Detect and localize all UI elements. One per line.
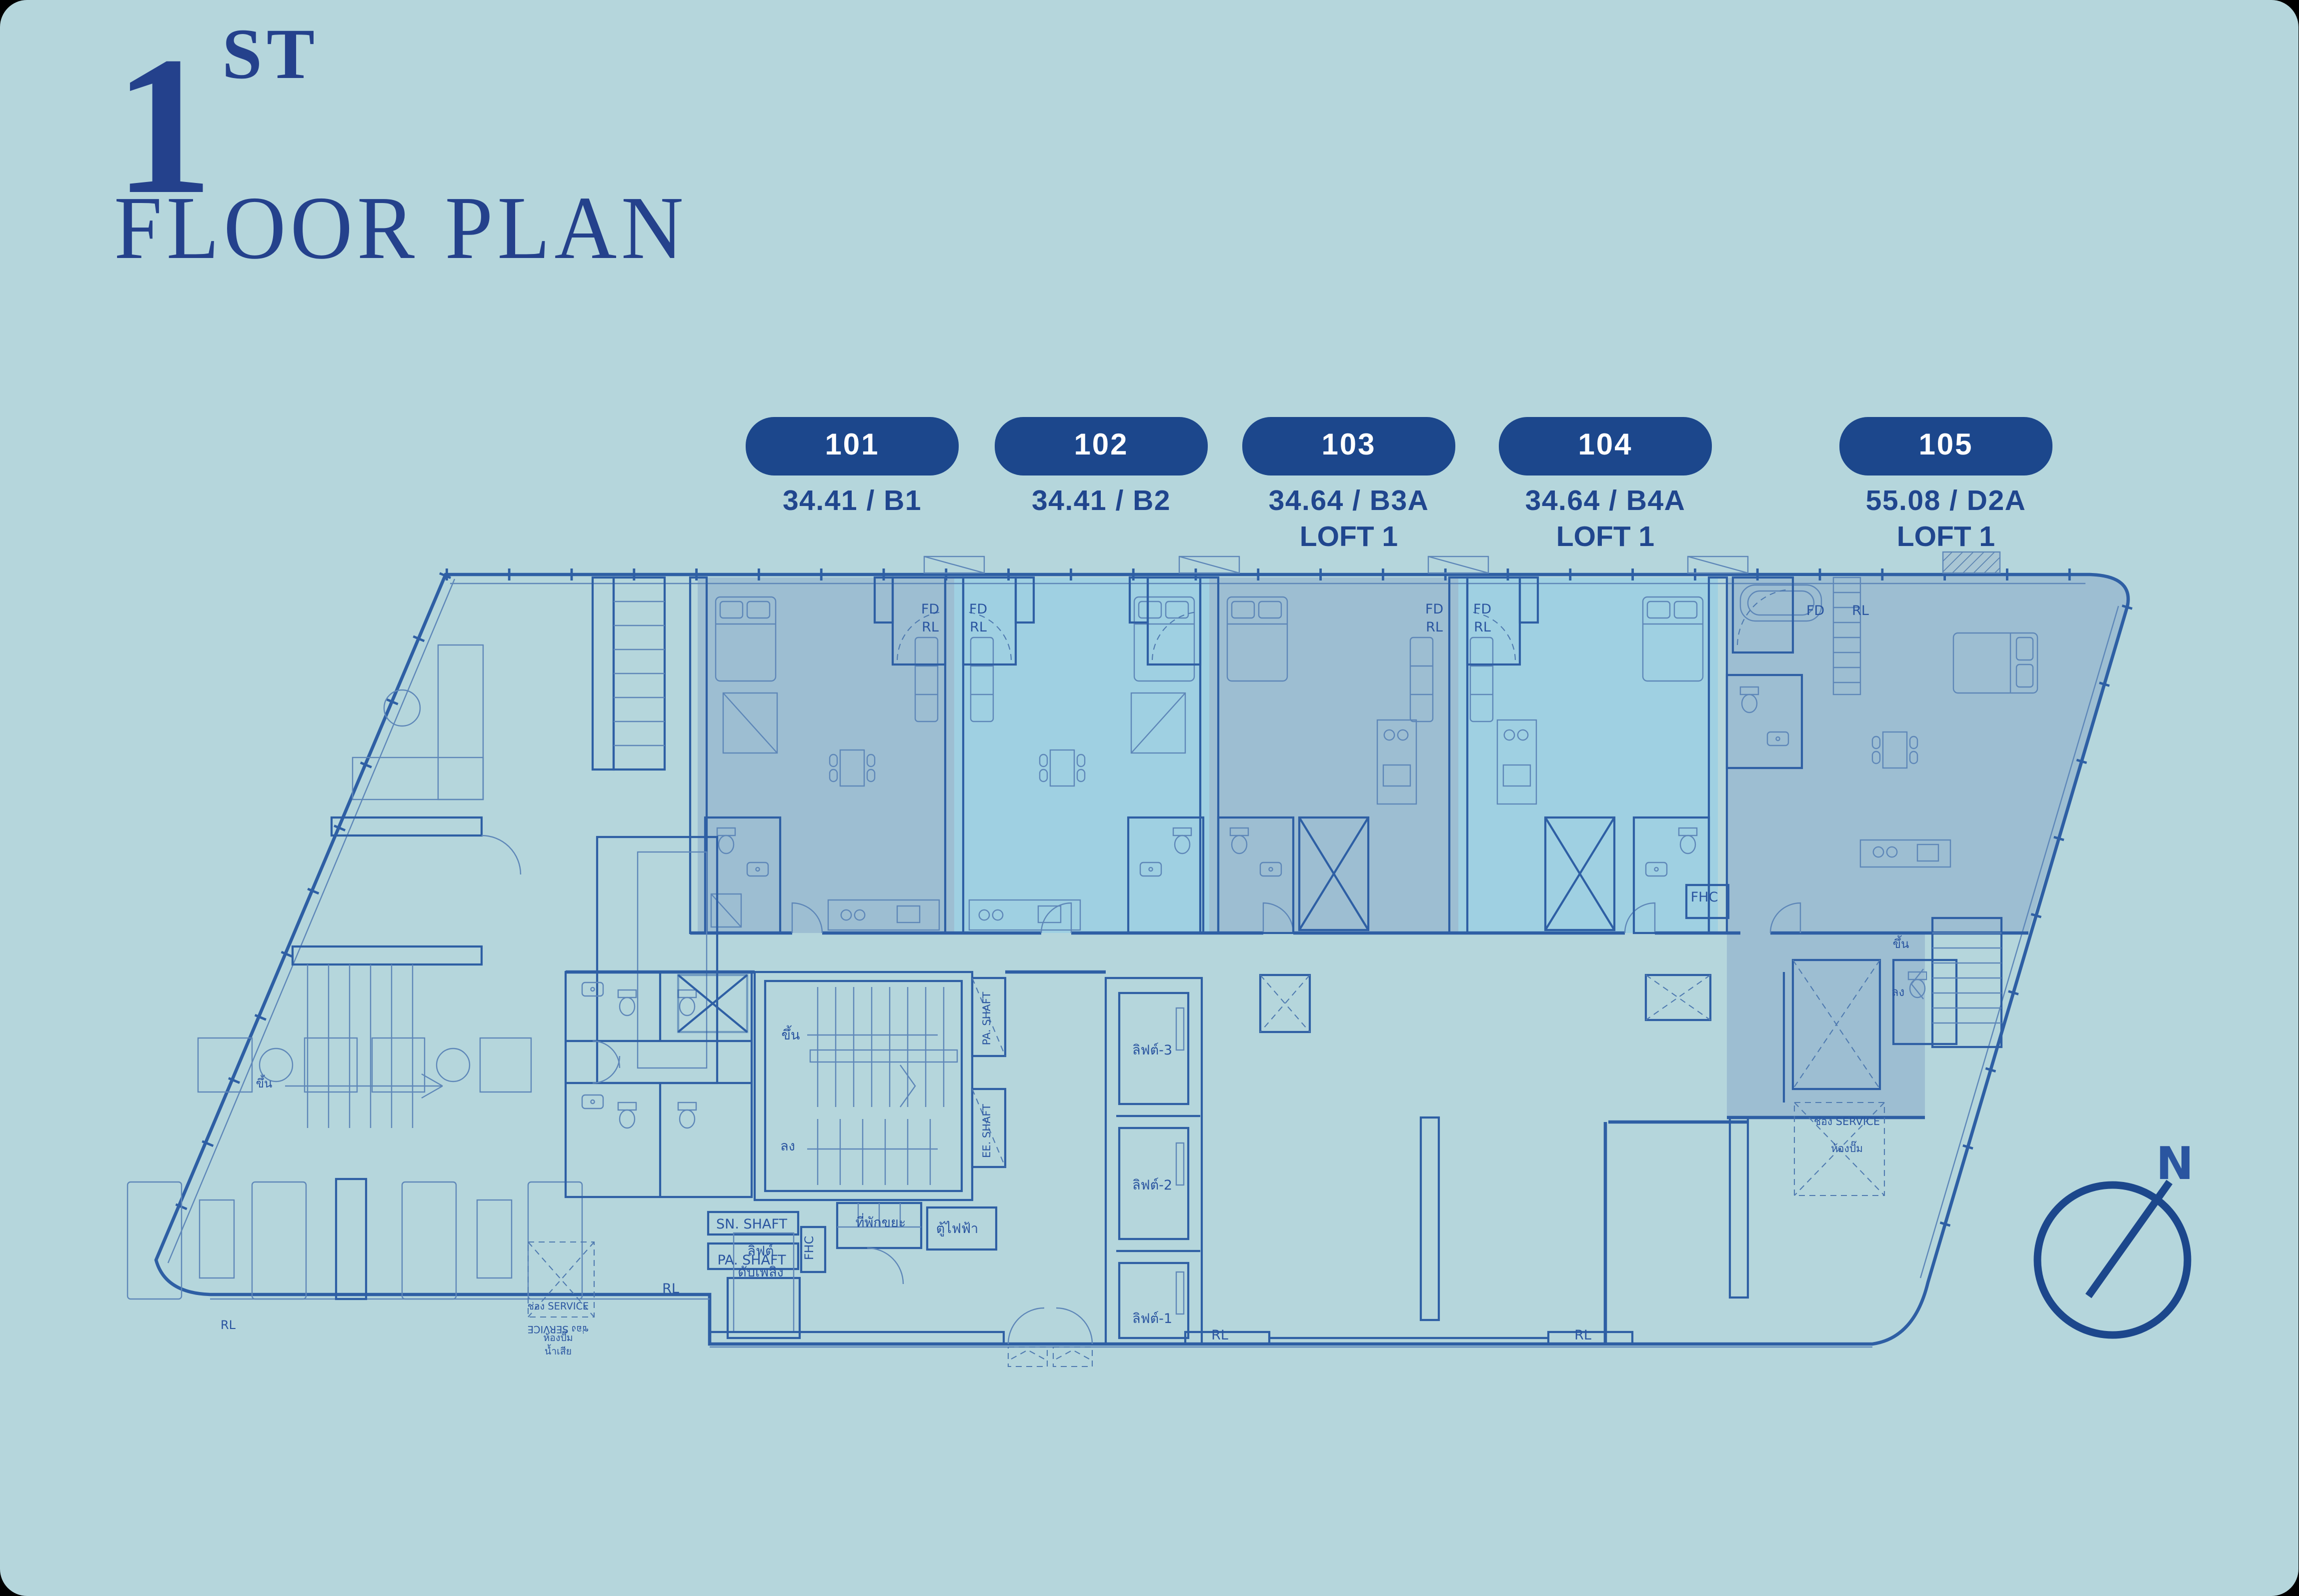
compass: N	[2037, 1137, 2193, 1335]
plan-label: ช่อง SERVICE	[528, 1300, 589, 1312]
plan-label: RL	[1211, 1327, 1228, 1343]
elevator-bank	[1106, 978, 1202, 1344]
plan-label: RL	[1574, 1327, 1591, 1343]
plan-label: ลิฟต์	[747, 1243, 774, 1259]
plan-label: RL	[221, 1318, 236, 1332]
unit-103-area[interactable]	[1209, 577, 1458, 933]
plan-label: ลิฟต์-2	[1132, 1177, 1172, 1193]
compass-north-label: N	[2156, 1137, 2193, 1190]
plan-label: SN. SHAFT	[716, 1216, 787, 1232]
plan-label: ห้องปั๊ม	[543, 1330, 573, 1343]
plan-label: ห้องปั๊ม	[1831, 1140, 1863, 1154]
plan-label: RL	[1426, 619, 1443, 635]
plan-label: FD	[1473, 601, 1491, 617]
unit-105-area[interactable]	[1727, 574, 2128, 1117]
plan-label: RL	[970, 619, 987, 635]
bathroom-block	[566, 972, 752, 1197]
plan-label: ขึ้น	[256, 1074, 273, 1090]
plan-label: FD	[1806, 603, 1824, 618]
plan-label: ขึ้น	[782, 1025, 800, 1043]
plan-label: FHC	[1691, 889, 1718, 905]
plan-label: RL	[1852, 603, 1869, 618]
plan-label: ตู้ไฟฟ้า	[936, 1221, 978, 1236]
plan-label: ลิฟต์-1	[1132, 1310, 1172, 1326]
plan-label: FHC	[802, 1236, 816, 1260]
plan-label: ลง	[780, 1138, 795, 1154]
plan-label: ดับเพลิง	[738, 1264, 783, 1280]
plan-label: FD	[969, 601, 987, 617]
floor-plan-page: 1ST FLOOR PLAN 101 34.41 / B1 102 34.41 …	[0, 0, 2299, 1596]
plan-label: ที่พักขยะ	[856, 1213, 906, 1230]
plan-label: RL	[1474, 619, 1491, 635]
unit-area-tints	[698, 574, 2128, 1117]
plan-label: ช่อง SERVICE	[1814, 1115, 1880, 1127]
unit-102-area[interactable]	[954, 577, 1209, 933]
plan-label: ลิฟต์-3	[1132, 1042, 1172, 1058]
plan-label: PA. SHAFT	[981, 992, 993, 1045]
floor-plan-drawing: N FDRLFDRLFDRLFDRLFDRLFHCSN. SHAFTPA. SH…	[0, 0, 2299, 1596]
plan-label: EE. SHAFT	[981, 1104, 993, 1158]
plan-label: RL	[922, 619, 939, 635]
plan-label: FD	[1425, 601, 1443, 617]
plan-label: ลง	[1891, 985, 1904, 999]
unit-101-area[interactable]	[698, 577, 954, 933]
plan-label: ขึ้น	[1893, 935, 1909, 951]
plan-label: RL	[662, 1281, 679, 1296]
plan-label: FD	[921, 601, 939, 617]
plan-label: น้ำเสีย	[545, 1344, 572, 1357]
lobby-area	[128, 577, 717, 1317]
